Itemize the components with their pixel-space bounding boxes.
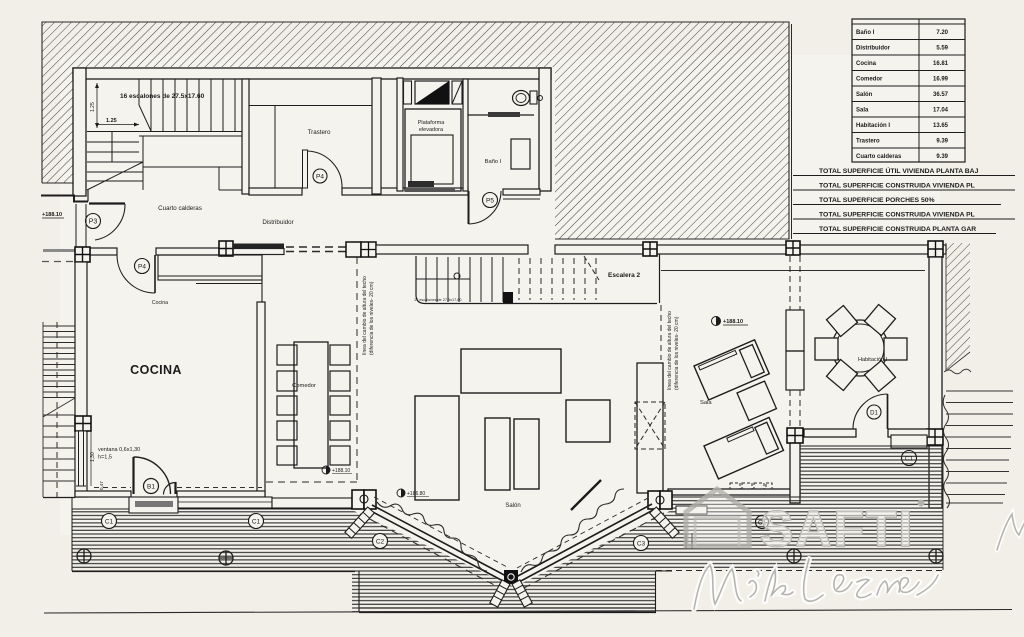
svg-text:elevadora: elevadora [419, 127, 444, 133]
svg-text:TOTAL SUPERFICIE ÚTIL VIVIENDA: TOTAL SUPERFICIE ÚTIL VIVIENDA PLANTA BA… [819, 166, 979, 175]
svg-text:COCINA: COCINA [130, 363, 182, 377]
svg-text:7.20: 7.20 [936, 30, 948, 36]
svg-text:Plataforma: Plataforma [418, 120, 446, 126]
svg-text:17.04: 17.04 [933, 108, 949, 114]
svg-text:16.99: 16.99 [933, 77, 949, 83]
svg-text:Comedor: Comedor [856, 77, 883, 83]
svg-text:Trastero: Trastero [856, 139, 880, 145]
svg-text:Escalera 2: Escalera 2 [608, 272, 641, 279]
svg-text:36.57: 36.57 [933, 92, 949, 98]
svg-text:0,47: 0,47 [99, 481, 104, 490]
svg-text:1,30: 1,30 [90, 452, 96, 462]
svg-text:P4: P4 [138, 264, 146, 271]
svg-text:línea del cambio de altura del: línea del cambio de altura del techo [667, 311, 673, 390]
svg-text:P3: P3 [89, 219, 98, 226]
svg-text:Sala: Sala [700, 400, 712, 406]
svg-text:1.25: 1.25 [106, 118, 117, 124]
svg-text:C1: C1 [905, 456, 914, 463]
svg-text:Trastero: Trastero [308, 129, 331, 136]
svg-text:B1: B1 [147, 484, 155, 491]
svg-text:5.59: 5.59 [936, 46, 948, 52]
svg-text:C3: C3 [637, 541, 646, 548]
svg-text:Cocina: Cocina [856, 61, 877, 67]
svg-text:Distribuidor: Distribuidor [856, 46, 891, 52]
svg-text:+188.10: +188.10 [42, 212, 62, 218]
svg-text:16.81: 16.81 [933, 61, 949, 67]
svg-text:Salón: Salón [505, 503, 520, 509]
svg-text:ventana 0,6x1,30: ventana 0,6x1,30 [98, 447, 140, 453]
svg-text:C1: C1 [252, 519, 261, 526]
svg-text:Sala: Sala [856, 108, 869, 114]
svg-text:+186.80: +186.80 [407, 491, 425, 497]
svg-text:Cuarto calderas: Cuarto calderas [158, 205, 202, 212]
svg-text:TOTAL SUPERFICIE PORCHES 50%: TOTAL SUPERFICIE PORCHES 50% [819, 197, 935, 204]
svg-text:Cuarto calderas: Cuarto calderas [856, 154, 902, 160]
svg-text:13.65: 13.65 [933, 123, 949, 129]
svg-text:+188.10: +188.10 [332, 468, 350, 474]
svg-text:h=1,5: h=1,5 [98, 455, 112, 461]
svg-text:Habitación I: Habitación I [856, 123, 890, 129]
svg-text:Baño I: Baño I [856, 30, 875, 36]
svg-text:Distribuidor: Distribuidor [262, 219, 293, 226]
svg-text:9.39: 9.39 [936, 154, 948, 160]
svg-text:1.25: 1.25 [90, 102, 96, 112]
svg-text:TOTAL SUPERFICIE CONSTRUIDA VI: TOTAL SUPERFICIE CONSTRUIDA VIVIENDA PL [819, 183, 975, 190]
svg-text:SAFTI: SAFTI [760, 501, 914, 557]
svg-text:+188.10: +188.10 [723, 319, 743, 325]
svg-text:17 escalones de 27,5x17,60: 17 escalones de 27,5x17,60 [414, 298, 462, 302]
svg-text:(diferencia de los niveles- 20: (diferencia de los niveles- 20 cm) [674, 316, 680, 390]
svg-text:Comedor: Comedor [292, 383, 316, 389]
svg-text:Salón: Salón [856, 92, 873, 98]
svg-text:Baño I: Baño I [485, 159, 502, 165]
svg-text:D1: D1 [870, 411, 878, 417]
svg-text:P5: P5 [486, 198, 494, 205]
svg-text:línea del cambio de altura del: línea del cambio de altura del techo [362, 276, 368, 355]
svg-text:Habitación I: Habitación I [858, 357, 888, 363]
svg-text:P4: P4 [316, 174, 324, 181]
svg-text:(diferencia de los niveles- 20: (diferencia de los niveles- 20 cm) [369, 281, 375, 355]
svg-text:TOTAL SUPERFICIE CONSTRUIDA VI: TOTAL SUPERFICIE CONSTRUIDA VIVIENDA PL [819, 212, 975, 219]
svg-text:C1: C1 [105, 519, 114, 526]
svg-text:C2: C2 [376, 539, 385, 546]
svg-text:16 escalones de 27.5x17.60: 16 escalones de 27.5x17.60 [120, 93, 205, 100]
svg-text:9.39: 9.39 [936, 139, 948, 145]
svg-text:TOTAL SUPERFICIE CONSTRUIDA P: TOTAL SUPERFICIE CONSTRUIDA PLANTA GAR [819, 226, 976, 233]
svg-text:Cocina: Cocina [152, 300, 168, 306]
